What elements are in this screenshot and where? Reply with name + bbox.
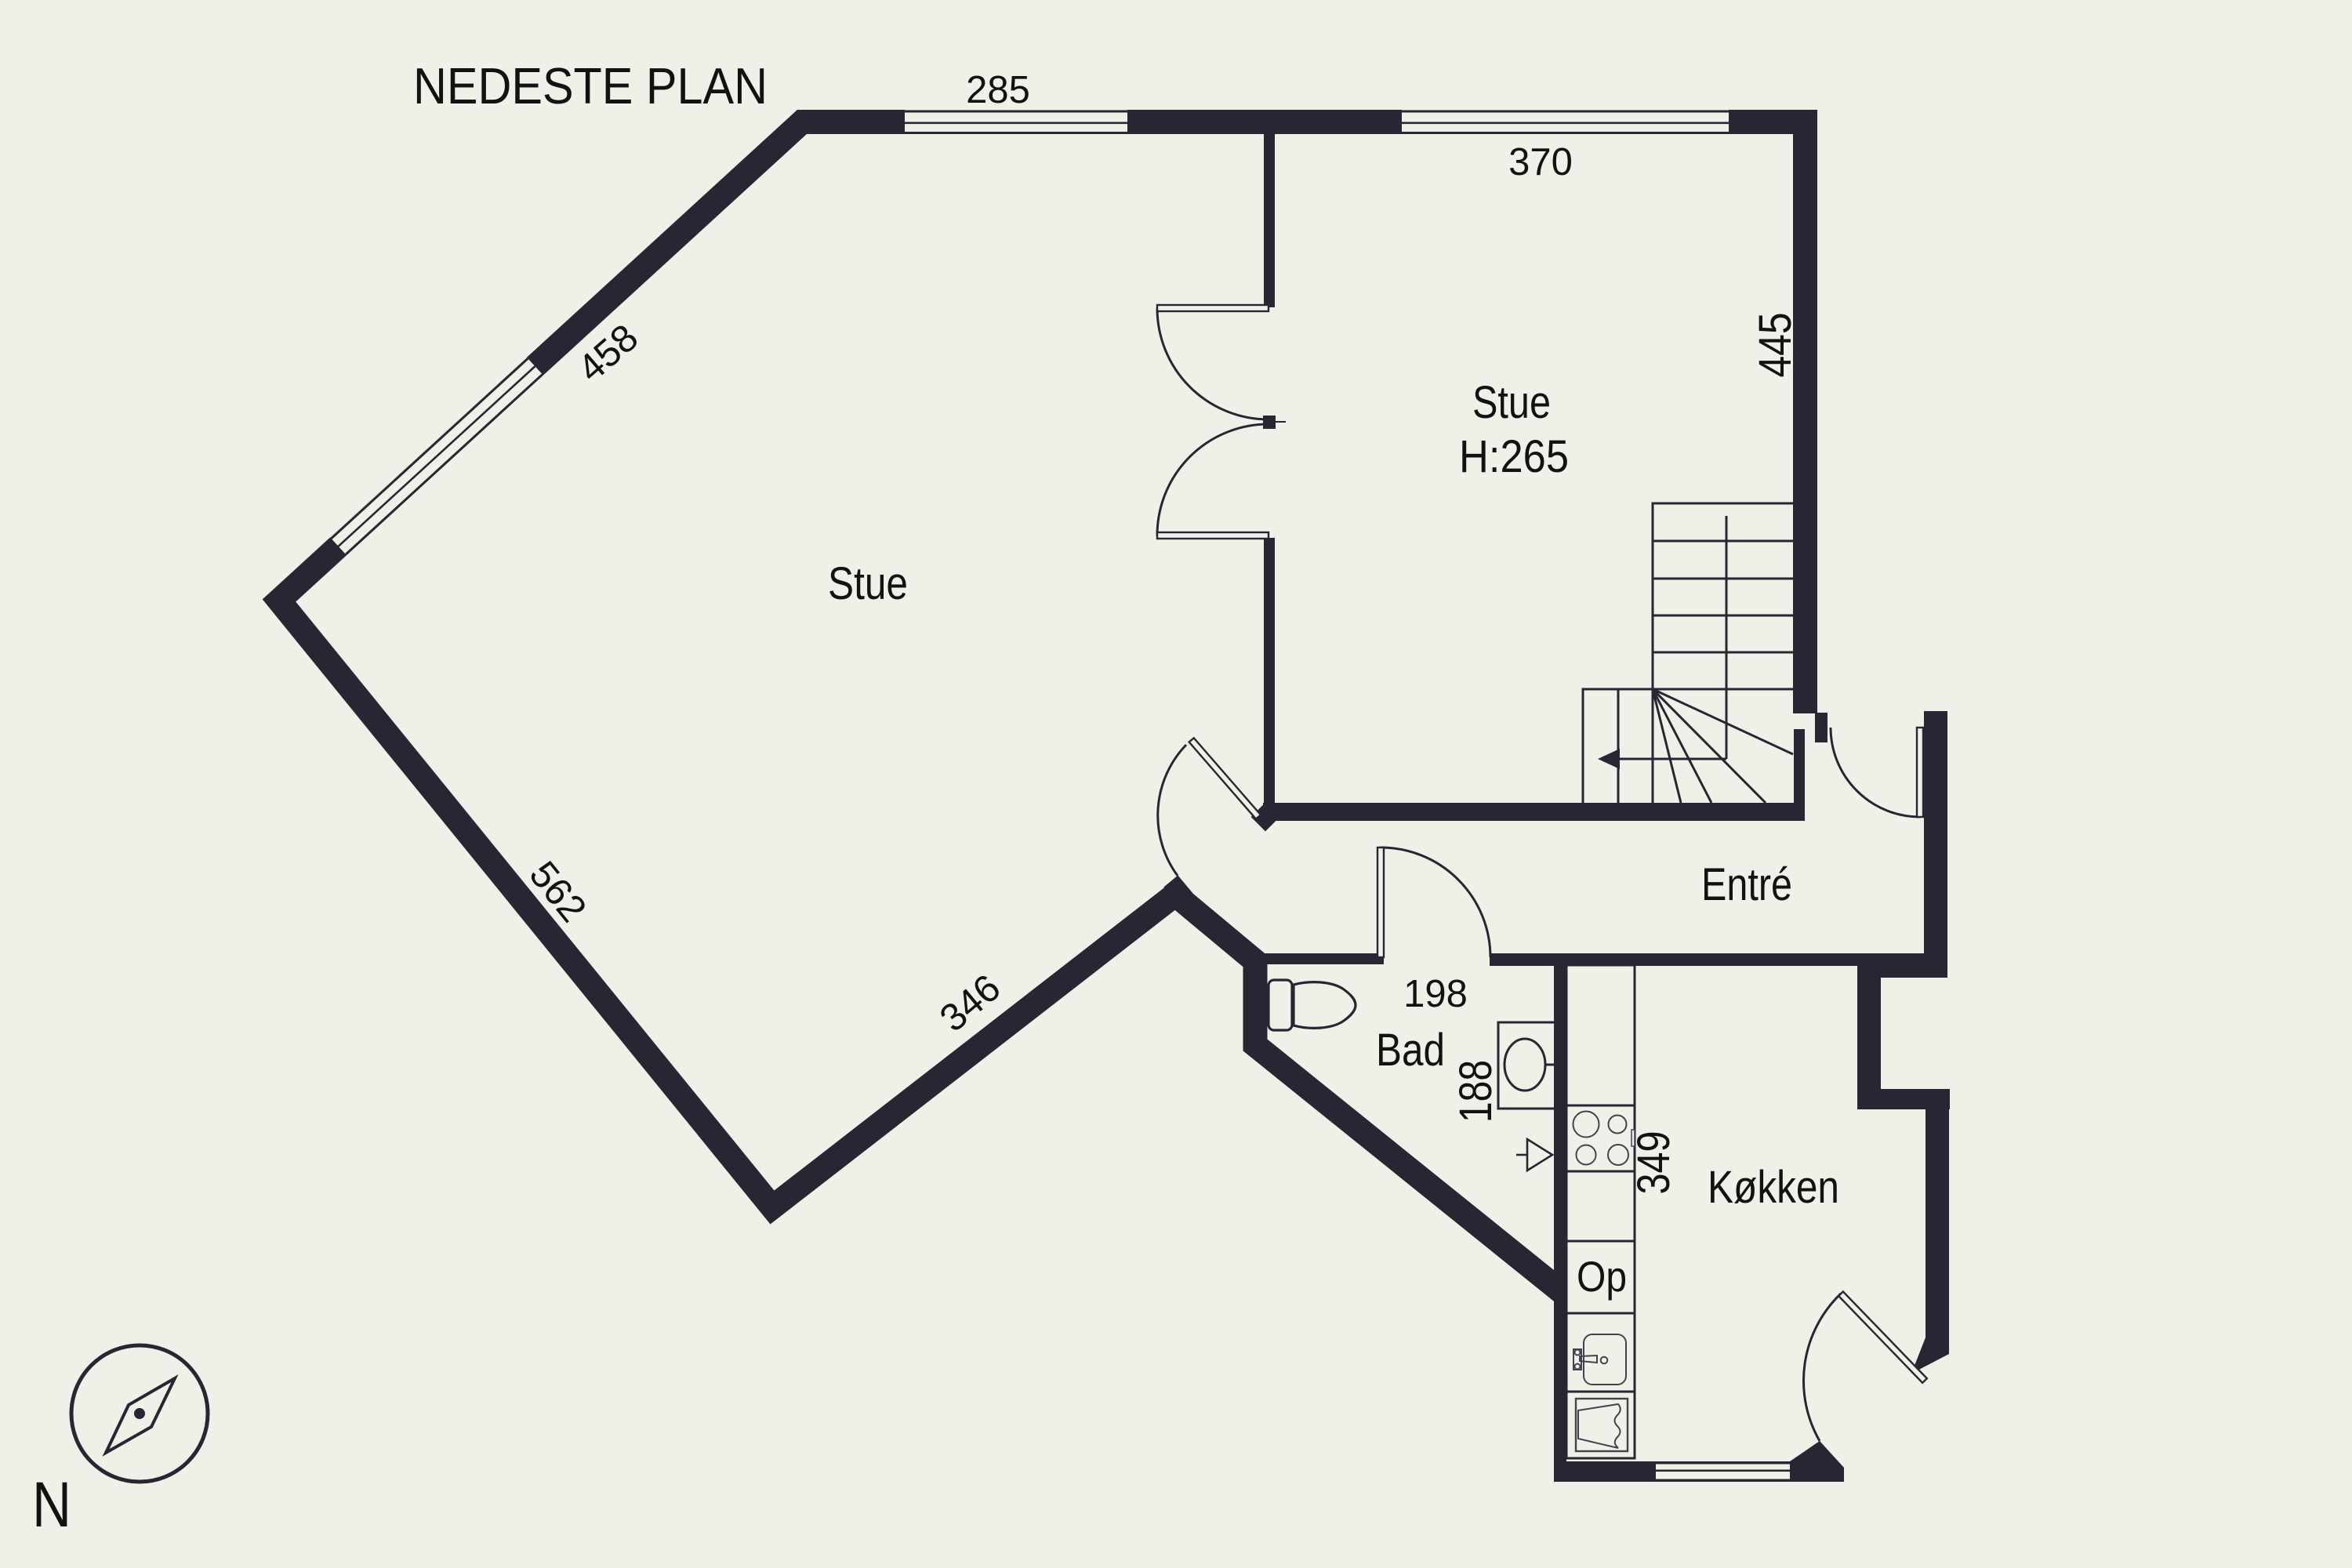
svg-text:Stue: Stue (1472, 377, 1551, 428)
svg-text:N: N (32, 1469, 71, 1541)
svg-text:NEDESTE PLAN: NEDESTE PLAN (413, 57, 768, 114)
svg-text:Entré: Entré (1701, 859, 1792, 910)
svg-text:370: 370 (1508, 141, 1573, 183)
svg-text:H:265: H:265 (1459, 431, 1569, 482)
svg-text:349: 349 (1628, 1131, 1679, 1195)
svg-text:445: 445 (1750, 313, 1801, 378)
svg-text:285: 285 (966, 69, 1030, 111)
svg-text:Bad: Bad (1376, 1025, 1445, 1076)
svg-text:Køkken: Køkken (1708, 1162, 1839, 1213)
svg-text:Op: Op (1577, 1252, 1627, 1301)
svg-text:188: 188 (1450, 1060, 1501, 1123)
svg-text:Stue: Stue (828, 558, 908, 609)
svg-text:198: 198 (1403, 973, 1468, 1015)
